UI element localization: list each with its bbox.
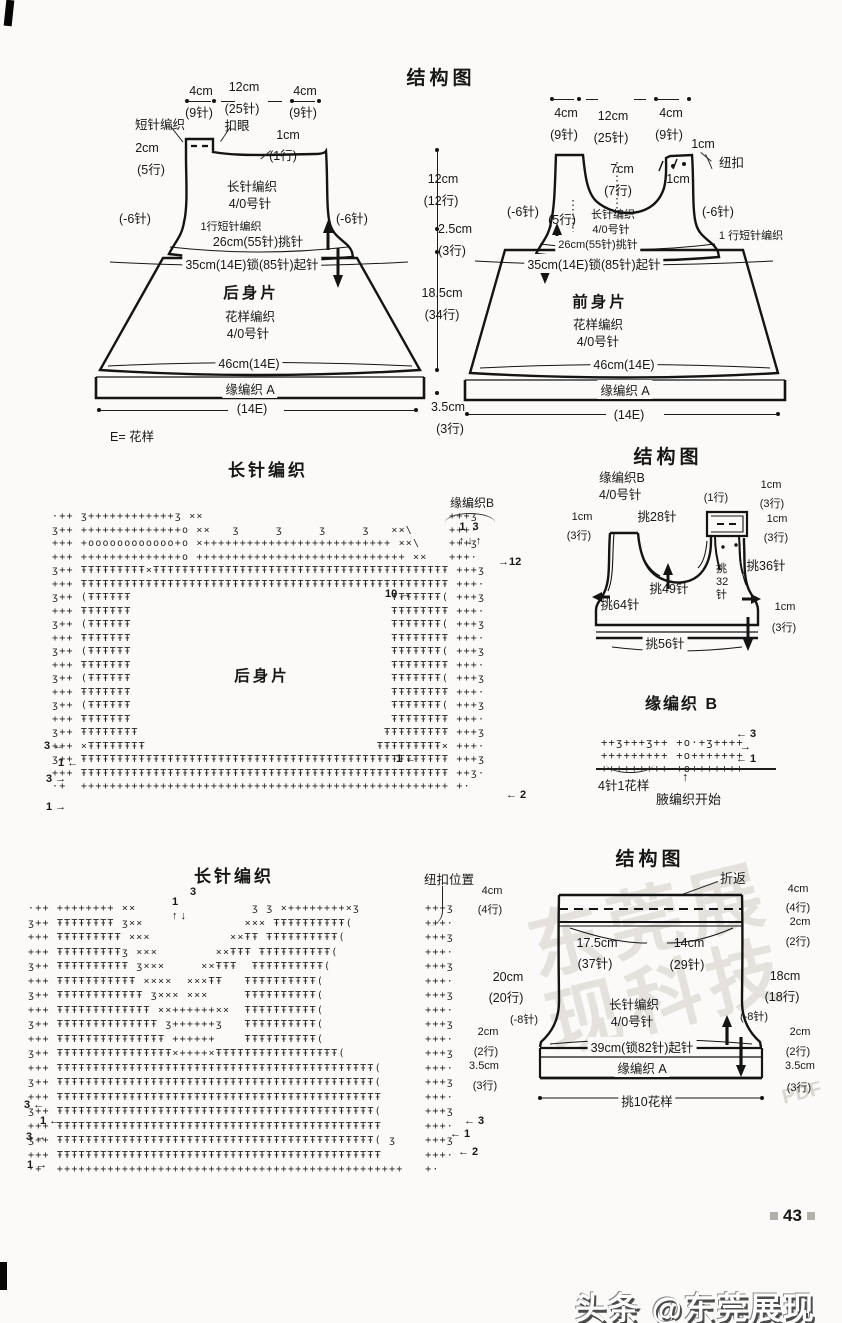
dim-line-14E [468, 414, 606, 415]
dim-dot [435, 368, 439, 372]
skirt-right-2rows: (2行) [786, 933, 810, 949]
dim-dot [654, 97, 658, 101]
skirt-bl-3rows: (3行) [473, 1077, 497, 1093]
page-number-value: 43 [783, 1206, 802, 1226]
chart-front-title: 长针编织 [194, 862, 274, 887]
front-sc-row-label: 1 行短针编织 [719, 227, 783, 243]
front-stitch-label: 长针编织 [591, 206, 635, 222]
page-number-ornament [807, 1212, 815, 1220]
button-dot [682, 162, 686, 166]
dim-dot [465, 412, 469, 416]
skirt-width1-sts: (37针) [578, 953, 613, 972]
dim-line-14E [664, 414, 778, 415]
front-dec-right: (-6针) [702, 201, 734, 220]
skirt-cast-on: 39cm(锁82针)起针 [588, 1037, 697, 1056]
scanned-pattern-page: 东莞展现科技 PDF 结构图 [0, 0, 842, 1323]
dim-line [554, 99, 574, 100]
vest-cm-top-rows: (3行) [760, 495, 784, 511]
chart-front-arrows: ↑ ↓ [172, 910, 186, 922]
chart-back-rownum: 1 ← [396, 753, 416, 765]
edgeB-arrow1: ← 1 [736, 753, 756, 765]
front-hem-width: 46cm(14E) [590, 358, 657, 372]
back-buttonhole-label: 扣眼 [224, 115, 249, 134]
edgeB-title: 缘编织 B [645, 690, 719, 714]
back-edge-height: 1cm [276, 128, 300, 142]
vest-cm-top: 1cm [761, 479, 782, 491]
front-dec-left: (-6针) [507, 201, 539, 220]
vest-row1: (1行) [704, 489, 728, 505]
dim-dot [760, 1096, 764, 1100]
vest-pick49: 挑49针 [650, 578, 689, 597]
edgeB-up-arrow: ↑ [682, 770, 688, 784]
watermark-byline: 头条 @东莞展现科技 [575, 1283, 842, 1323]
skirt-height-right: 18cm [770, 969, 801, 983]
edgeB-arrow-mid: → [740, 741, 751, 753]
dim-line-14E [100, 410, 228, 411]
front-width-left-sts: (9针) [550, 124, 578, 143]
strap-dot [734, 543, 737, 546]
scan-artifact [4, 0, 15, 26]
skirt-dec-right: (-8针) [740, 1008, 768, 1024]
chart-back-center-label: 后身片 [234, 664, 290, 686]
dim-line [634, 99, 646, 100]
dim-line [268, 101, 282, 102]
chart-back-rownum: 1 → [46, 801, 66, 813]
chart-back-title: 长针编织 [228, 456, 308, 481]
skirt-left-4cm: 4cm [482, 885, 503, 897]
back-width-left-sts: (9针) [185, 102, 213, 121]
skirt-br-2cm: 2cm [790, 1026, 811, 1038]
mid-h1: 12cm [428, 172, 459, 186]
front-width-mid-sts: (25针) [594, 127, 629, 146]
chart-front-rownum: ← 2 [458, 1146, 478, 1158]
dim-dot [776, 412, 780, 416]
mid-h4-rows: (3行) [436, 418, 464, 437]
front-neck-depth: 7cm [610, 162, 634, 176]
chart-front-rownum: 3 → [26, 1131, 46, 1143]
front-hem-dim: (14E) [611, 408, 648, 422]
front-edging-label: 缘编织 A [597, 380, 652, 399]
skirt-right-2cm: 2cm [790, 916, 811, 928]
front-cast-on-label: 35cm(14E)锁(85针)起针 [524, 254, 663, 273]
vest-pick28: 挑28针 [638, 506, 677, 525]
skirt-br-35cm: 3.5cm [785, 1060, 815, 1072]
mid-h2-rows: (3行) [438, 240, 466, 259]
vest-pick32: 挑32针 [716, 563, 731, 602]
front-hook2-label: 4/0号针 [577, 331, 619, 350]
skirt-width2: 14cm [674, 936, 705, 950]
vest-neck-scoop [638, 533, 711, 583]
back-width-right: 4cm [293, 84, 317, 98]
skirt-bl-2rows: (2行) [474, 1043, 498, 1059]
strap-dot [721, 545, 724, 548]
skirt-br-3rows: (3行) [787, 1079, 811, 1095]
arrow-down-head [743, 639, 753, 651]
back-hem-dim: (14E) [234, 402, 271, 416]
front-button-label: 纽扣 [719, 152, 744, 171]
arrow-down-head [540, 272, 550, 284]
chart-back-symbols: ·++ ʒ++++++++++++ʒ ×× +++ʒ ʒ++ +++++++++… [52, 510, 485, 794]
chart-front-rownum: ← 3 [464, 1115, 484, 1127]
button-dot [671, 164, 675, 168]
vest-cm-left: 1cm [572, 511, 593, 523]
dim-line-14E [284, 410, 416, 411]
dim-dot [97, 408, 101, 412]
front-rows5: (5行) [548, 209, 576, 228]
chart-back-col-arrows: ↑ ↓ ↑ [459, 535, 482, 547]
mid-h3: 18.5cm [422, 286, 463, 300]
skirt-pickup: 挑10花样 [618, 1091, 675, 1110]
chart-front-num3: 3 [190, 886, 196, 898]
back-tab-height-rows: (5行) [137, 159, 165, 178]
vest-cm-right-rows: (3行) [764, 529, 788, 545]
back-tab-height: 2cm [135, 141, 159, 155]
chart-back-rownum: 3 → [46, 773, 66, 785]
vest-pick56: 挑56针 [643, 633, 688, 652]
vest-cm-bottom-rows: (3行) [772, 619, 796, 635]
dim-line [586, 99, 598, 100]
back-dec-left: (-6针) [119, 208, 151, 227]
chart-back-col-numbers: 1 3 [459, 521, 480, 533]
chart-front-num1: 1 [172, 896, 178, 908]
chart-front-rownum: 3 ← [24, 1099, 44, 1111]
back-hook-label: 4/0号针 [229, 193, 271, 212]
skirt-hook-label: 4/0号针 [611, 1011, 653, 1030]
back-dec-right: (-6针) [336, 208, 368, 227]
chart-front-btnpos-label: 纽扣位置 [424, 869, 474, 888]
vest-cm-left-rows: (3行) [567, 527, 591, 543]
chart-back-rownum: ← 2 [506, 789, 526, 801]
page-number: 43 [770, 1206, 815, 1226]
front-button-height2: 1cm [666, 172, 690, 186]
arrow-down-head [736, 1065, 746, 1077]
back-width-mid: 12cm [229, 80, 260, 94]
vest-cm-bottom: 1cm [775, 601, 796, 613]
chart-front-rownum: 1 → [27, 1159, 47, 1171]
skirt-fold-label: 折返 [720, 868, 746, 887]
page-number-ornament [770, 1212, 778, 1220]
back-pickup-label: 26cm(55针)挑针 [210, 231, 306, 250]
scan-artifact [0, 1262, 7, 1290]
vest-pick36: 挑36针 [747, 555, 786, 574]
skirt-left-4rows: (4行) [478, 901, 502, 917]
skirt-width2-sts: (29针) [670, 954, 705, 973]
back-hem-width: 46cm(14E) [215, 357, 282, 371]
vest-title: 结构图 [633, 442, 702, 469]
back-piece-name: 后身片 [223, 281, 279, 303]
back-width-left: 4cm [189, 84, 213, 98]
dim-dot [435, 148, 439, 152]
skirt-width1: 17.5cm [577, 936, 618, 950]
front-width-left: 4cm [554, 106, 578, 120]
front-width-right-sts: (9针) [655, 124, 683, 143]
mid-h3-rows: (34行) [425, 304, 460, 323]
chart-back-row12: →12 [498, 556, 521, 568]
edgeB-start-label: 腋编织开始 [656, 789, 721, 808]
dim-dot [550, 97, 554, 101]
vest-hook-label: 4/0号针 [599, 484, 641, 503]
mid-h2: 2.5cm [438, 222, 472, 236]
arrow-up-head [722, 1015, 732, 1027]
dim-dot [577, 97, 581, 101]
dim-dot [687, 97, 691, 101]
front-pickup-label: 26cm(55针)挑针 [555, 236, 640, 252]
chart-back-row10: 10 → [385, 588, 411, 600]
front-width-mid: 12cm [598, 109, 629, 123]
skirt-br-2rows: (2行) [786, 1043, 810, 1059]
dim-dot [435, 391, 439, 395]
back-width-right-sts: (9针) [289, 102, 317, 121]
skirt-title: 结构图 [615, 844, 684, 871]
skirt-height-right-rows: (18行) [765, 986, 800, 1005]
vest-pick64: 挑64针 [601, 594, 640, 613]
chart-front-rownum: 1 ← [40, 1115, 60, 1127]
back-edging-label: 缘编织 A [222, 379, 277, 398]
skirt-height-left: 20cm [493, 970, 524, 984]
chart-back-edgeB-label: 缘编织B [450, 494, 494, 511]
mid-h4: 3.5cm [431, 400, 465, 414]
chart-front-rownum: ← 1 [450, 1128, 470, 1140]
dim-dot [317, 99, 321, 103]
front-neck-depth-rows: (7行) [604, 180, 632, 199]
front-piece-name: 前身片 [572, 290, 628, 312]
chart-front-symbols: ·++ ++++++++ ×× ʒ ʒ ×++++++++×ʒ +++ʒ ʒ++… [28, 902, 454, 1178]
skirt-height-left-rows: (20行) [489, 987, 524, 1006]
section1-title: 结构图 [406, 63, 475, 90]
skirt-bl-35cm: 3.5cm [469, 1060, 499, 1072]
dim-line [658, 99, 679, 100]
back-hook2-label: 4/0号针 [227, 323, 269, 342]
legend-note: E= 花样 [110, 426, 154, 445]
skirt-dec-left: (-8针) [510, 1011, 538, 1027]
edgeB-arrow3: ← 3 [736, 728, 756, 740]
skirt-right-4cm: 4cm [788, 883, 809, 895]
dim-dot [538, 1096, 542, 1100]
front-button-height1: 1cm [691, 137, 715, 151]
mid-h1-rows: (12行) [424, 190, 459, 209]
skirt-right-4rows: (4行) [786, 899, 810, 915]
chart-back-rownum: 3 ← [44, 740, 64, 752]
arrow-up-head [663, 563, 673, 575]
back-edge-height-rows: (1行) [269, 145, 297, 164]
arrow-down-head [333, 275, 343, 288]
skirt-edging: 缘编织 A [614, 1058, 669, 1077]
vest-tab-inner [711, 516, 743, 532]
edgeB-unit-label: 4针1花样 [598, 775, 649, 794]
dim-dot [414, 408, 418, 412]
skirt-bl-2cm: 2cm [478, 1026, 499, 1038]
front-width-right: 4cm [659, 106, 683, 120]
back-cast-on-label: 35cm(14E)锁(85针)起针 [182, 254, 321, 273]
vest-cm-right: 1cm [767, 513, 788, 525]
chart-back-rownum: 1 ← [58, 757, 78, 769]
front-hook-label: 4/0号针 [592, 221, 629, 237]
back-sc-band-label: 短针编织 [135, 114, 185, 133]
